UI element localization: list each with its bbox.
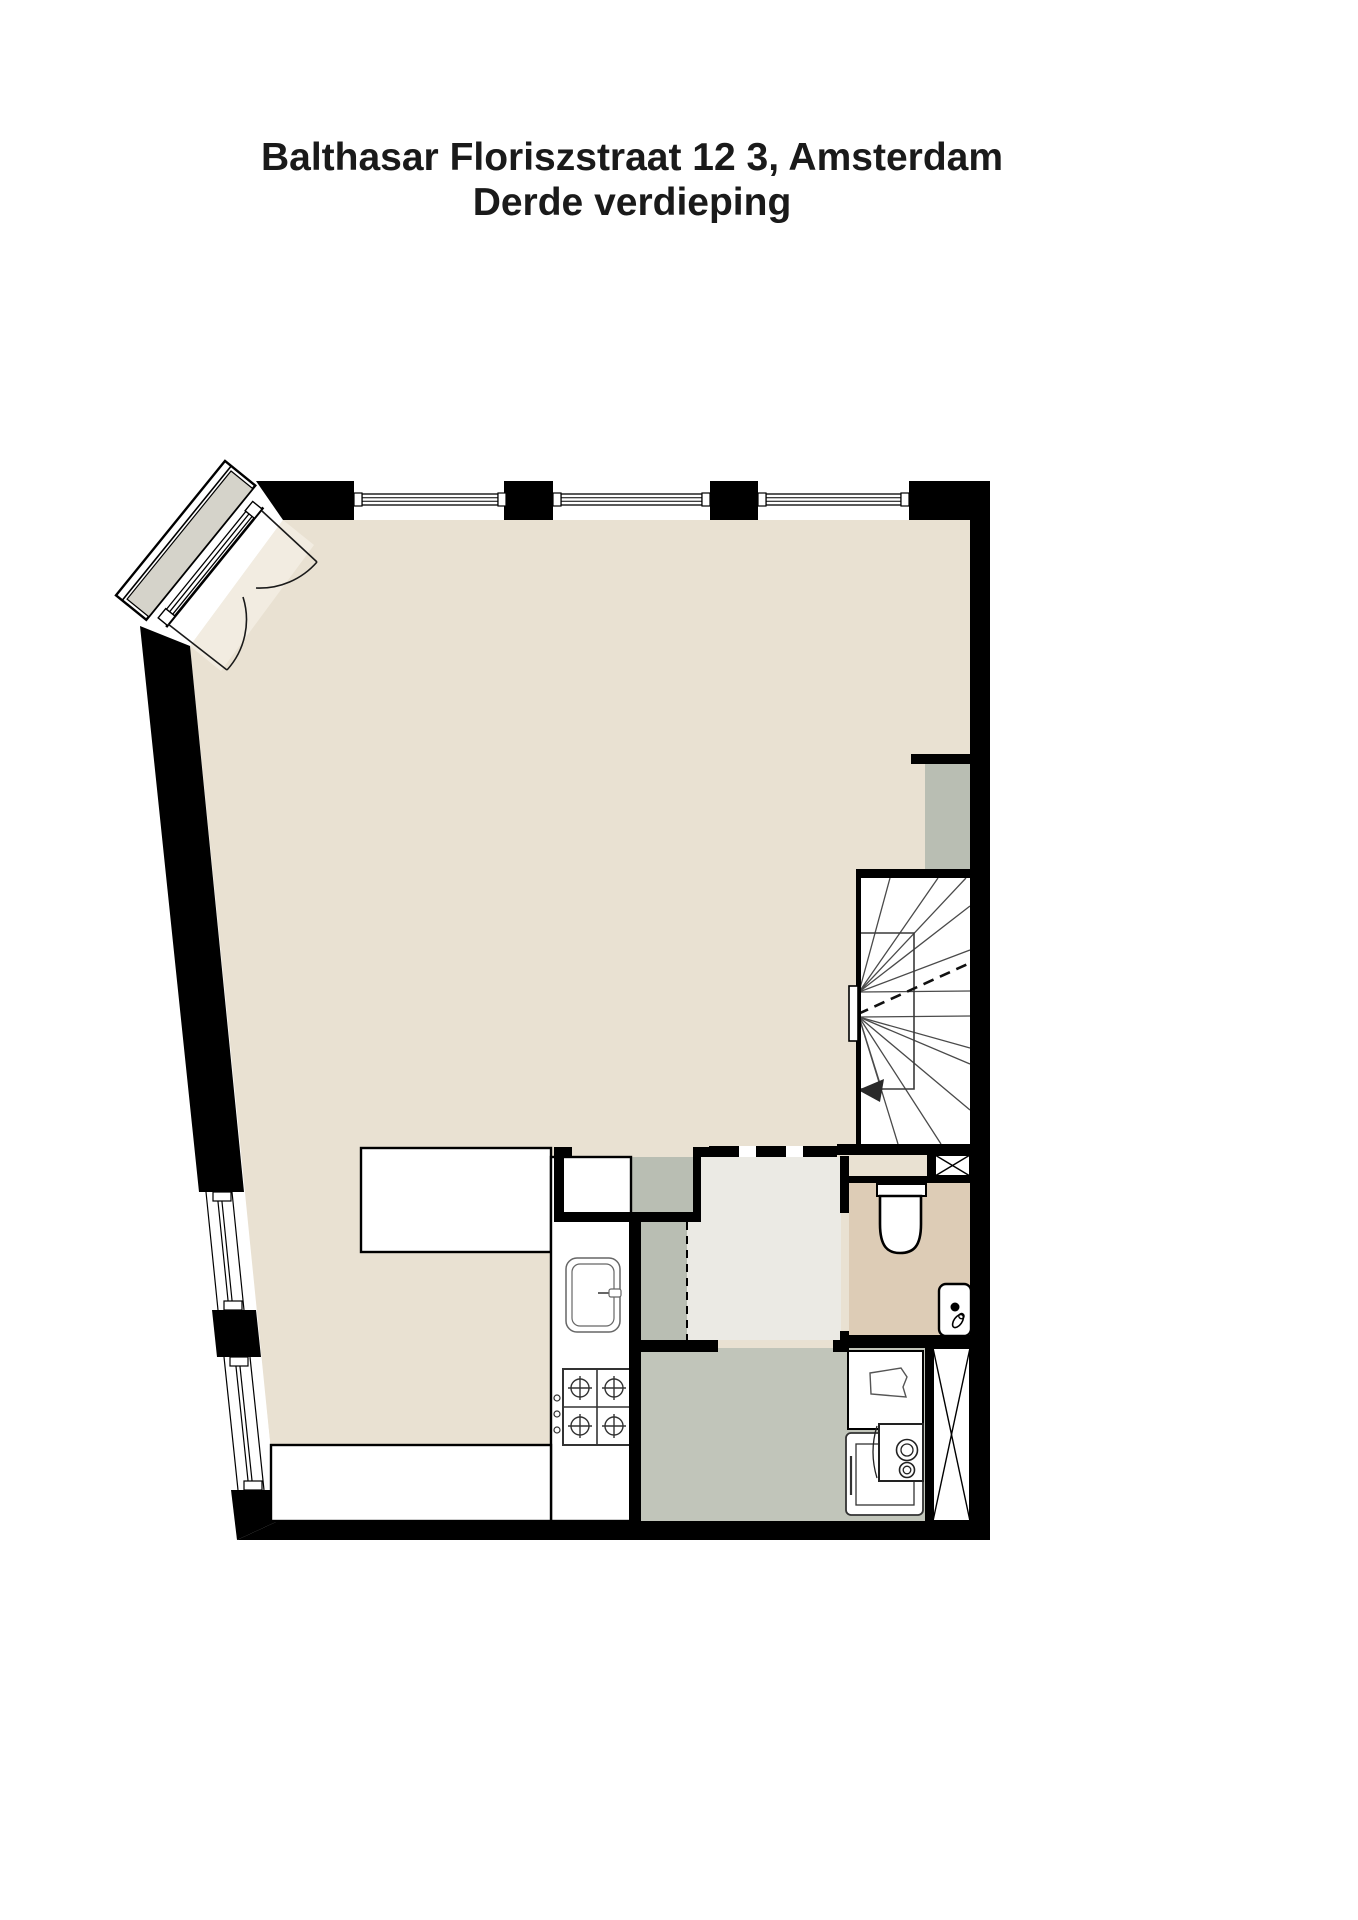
- svg-text:Balthasar Floriszstraat 12 3,: Balthasar Floriszstraat 12 3, Amsterdam: [261, 136, 1003, 179]
- svg-text:Derde verdieping: Derde verdieping: [473, 181, 792, 224]
